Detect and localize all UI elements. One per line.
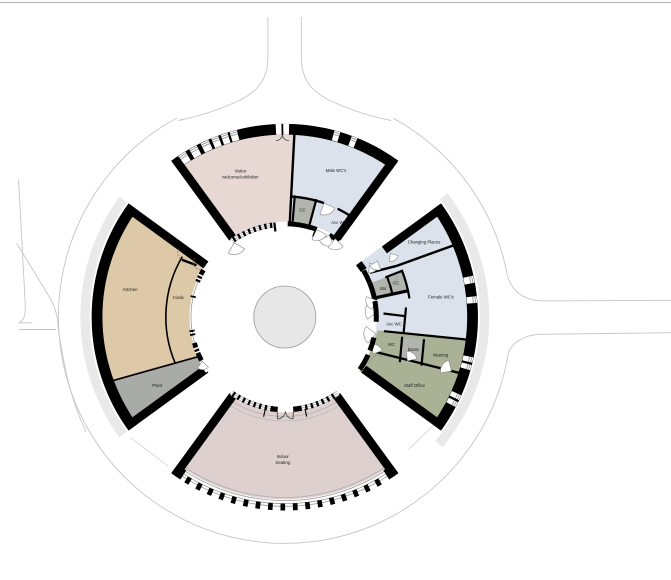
svg-text:Acc WC: Acc WC xyxy=(331,220,347,225)
svg-text:Changing Places: Changing Places xyxy=(408,240,441,245)
svg-text:WC: WC xyxy=(388,342,395,347)
svg-text:Staff Office: Staff Office xyxy=(404,383,426,388)
svg-text:Kiosk: Kiosk xyxy=(173,295,184,300)
svg-text:Seating: Seating xyxy=(275,460,290,465)
svg-text:Plant: Plant xyxy=(152,383,163,388)
svg-text:CC: CC xyxy=(299,208,305,213)
svg-text:Boots: Boots xyxy=(408,347,419,352)
svg-text:Indoor: Indoor xyxy=(277,454,290,459)
svg-text:Meeting: Meeting xyxy=(433,353,449,358)
svg-text:Female WC's: Female WC's xyxy=(428,295,454,300)
svg-text:CC: CC xyxy=(393,281,399,286)
svg-text:Kitchen: Kitchen xyxy=(123,287,138,292)
svg-text:Acc WC: Acc WC xyxy=(386,322,402,327)
svg-text:welcome/exhibition: welcome/exhibition xyxy=(222,174,259,179)
svg-text:Sto: Sto xyxy=(380,286,387,291)
svg-text:Visitor: Visitor xyxy=(234,169,246,174)
svg-text:Male WC's: Male WC's xyxy=(326,168,347,173)
